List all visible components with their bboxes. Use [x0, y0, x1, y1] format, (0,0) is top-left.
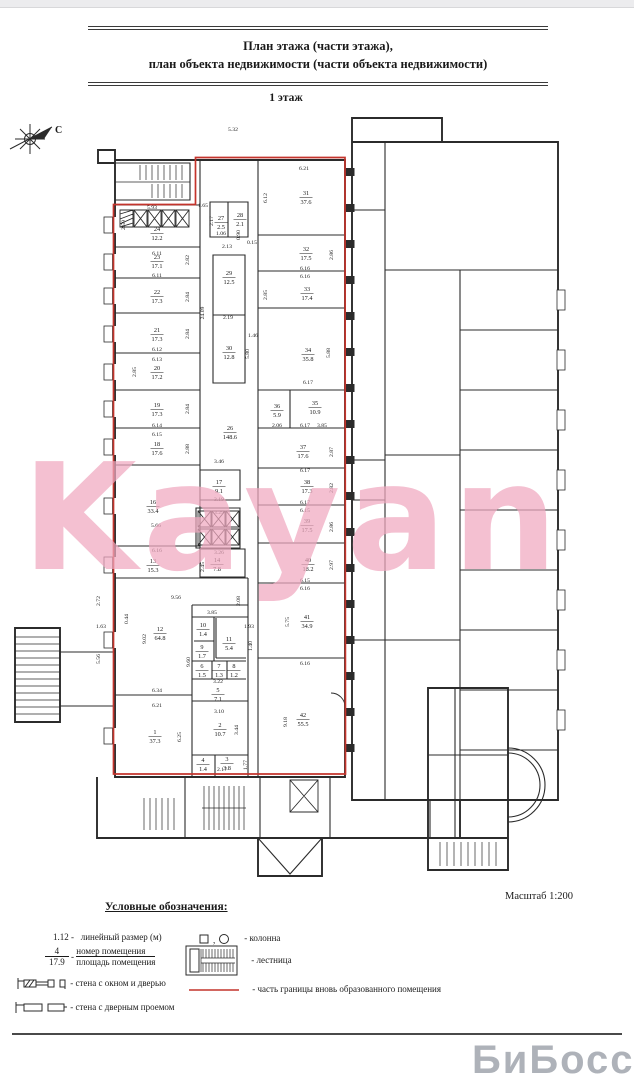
room-label: 282.1 [234, 212, 247, 228]
svg-text:17: 17 [216, 479, 222, 486]
svg-text:22: 22 [154, 289, 160, 296]
svg-text:28: 28 [237, 212, 243, 219]
room-label: 272.5 [215, 215, 228, 231]
svg-text:37.6: 37.6 [300, 199, 311, 206]
svg-text:9.1: 9.1 [215, 488, 223, 495]
svg-text:36: 36 [274, 403, 280, 410]
dimension-label: 9.56 [171, 595, 181, 601]
dimension-label: 5.66 [151, 523, 161, 529]
svg-text:39: 39 [304, 518, 310, 525]
room-label: 2217.3 [151, 289, 164, 305]
bottom-divider-line [12, 1033, 622, 1035]
svg-text:6: 6 [200, 663, 203, 670]
room-label: 3435.8 [302, 347, 315, 363]
dimension-label: 6.11 [152, 273, 162, 279]
svg-text:10.7: 10.7 [214, 731, 225, 738]
legend-dash: - [71, 952, 74, 962]
red-boundary-line-icon [188, 986, 240, 994]
legend-item-red-boundary: - часть границы вновь образованного поме… [188, 984, 441, 994]
svg-text:20: 20 [154, 365, 160, 372]
legend-room-fraction: 4 17.9 [45, 946, 69, 967]
dimension-label: 2.45 [200, 562, 206, 572]
dimension-label: 24.09 [200, 306, 206, 319]
svg-text:8: 8 [232, 663, 235, 670]
legend-room-area-label: площадь помещения [76, 957, 155, 967]
room-label: 91.7 [196, 644, 209, 660]
dimension-label: 1.65 [198, 203, 208, 209]
legend-room-area-example: 17.9 [45, 957, 69, 967]
legend-room-number-example: 4 [45, 946, 69, 957]
dimension-label: 2.19 [223, 315, 233, 321]
svg-text:14: 14 [214, 557, 221, 564]
dimension-label: 6.21 [299, 166, 309, 172]
svg-text:19: 19 [154, 402, 160, 409]
legend-red-boundary-label: - часть границы вновь образованного поме… [252, 984, 441, 994]
dimension-label: 1.77 [243, 760, 249, 770]
svg-text:12: 12 [157, 626, 163, 633]
room-label: 115.4 [223, 636, 236, 652]
svg-text:1.7: 1.7 [198, 653, 206, 660]
dimension-label: 6.25 [177, 732, 183, 742]
room-label: 4255.5 [297, 712, 310, 728]
dimension-label: 6.15 [300, 508, 310, 514]
svg-text:10.9: 10.9 [309, 409, 320, 416]
legend-title: Условные обозначения: [105, 901, 228, 913]
dimension-label: 2.88 [185, 444, 191, 454]
room-label: 3317.4 [301, 286, 314, 302]
legend-room-number-label: номер помещения [76, 946, 155, 957]
svg-text:1.4: 1.4 [199, 766, 208, 773]
dimension-label: 2.97 [329, 560, 335, 570]
svg-text:17.5: 17.5 [300, 255, 311, 262]
dimension-label: 2.87 [329, 447, 335, 457]
room-label: 2912.5 [223, 270, 236, 286]
room-label: 41.4 [197, 757, 210, 773]
svg-text:148.6: 148.6 [223, 434, 237, 441]
svg-text:35.8: 35.8 [302, 356, 313, 363]
legend-wall-window-label: - стена с окном и дверью [70, 978, 166, 988]
floor-plan-drawing: С 2412.22317.12217.32117.32017.21917.318… [0, 0, 634, 1080]
legend-item-stairs: - лестница [185, 945, 292, 977]
document-page: План этажа (части этажа), план объекта н… [0, 0, 634, 1080]
room-label: 179.1 [213, 479, 226, 495]
svg-text:5.9: 5.9 [273, 412, 281, 419]
svg-text:16: 16 [150, 499, 156, 506]
dimension-label: 9.18 [283, 717, 289, 727]
room-label: 26148.6 [223, 425, 237, 441]
legend-item-linear-dimension: 1.12 - линейный размер (м) [53, 932, 162, 942]
dimension-label: 2.84 [185, 292, 191, 302]
svg-text:17.6: 17.6 [297, 453, 308, 460]
svg-text:17.1: 17.1 [151, 263, 162, 270]
dimension-label: 1.06 [216, 231, 226, 237]
dimension-label: 2.72 [96, 596, 102, 606]
room-label: 1315.3 [147, 558, 160, 574]
legend-linear-dim-label: линейный размер (м) [81, 932, 162, 942]
dimension-label: 6.16 [300, 266, 310, 272]
dimension-label: 6.16 [300, 661, 310, 667]
svg-text:33.4: 33.4 [147, 508, 159, 515]
svg-text:2: 2 [218, 722, 221, 729]
svg-text:7.1: 7.1 [214, 696, 222, 703]
svg-text:12.5: 12.5 [223, 279, 234, 286]
dimension-label: 6.17 [300, 423, 310, 429]
svg-text:64.8: 64.8 [154, 635, 165, 642]
svg-text:17.6: 17.6 [151, 450, 162, 457]
dimension-label: 2.84 [185, 329, 191, 339]
svg-text:38: 38 [304, 479, 310, 486]
dimension-label: 2.86 [329, 250, 335, 260]
dimension-label: 9.02 [142, 634, 148, 644]
dimension-label: 6.34 [152, 688, 162, 694]
column-icon: , [198, 932, 234, 946]
legend-item-wall-door: - стена с дверным проемом [14, 1000, 174, 1016]
dimension-label: 6.12 [263, 193, 269, 203]
dimension-label: 1.63 [96, 624, 106, 630]
room-label: 3217.5 [300, 246, 313, 262]
dimension-label: 3.85 [317, 423, 327, 429]
stairs-icon [185, 945, 239, 977]
svg-text:33: 33 [304, 286, 310, 293]
legend-wall-door-label: - стена с дверным проемом [70, 1002, 174, 1012]
room-label: 210.7 [214, 722, 227, 738]
dimension-label: 3.44 [234, 725, 240, 735]
room-label: 1817.6 [151, 441, 164, 457]
svg-text:11: 11 [226, 636, 232, 643]
svg-text:26: 26 [227, 425, 233, 432]
room-label: 3137.6 [300, 190, 313, 206]
dimension-label: 3.85 [207, 610, 217, 616]
svg-text:17.2: 17.2 [151, 374, 162, 381]
svg-text:12.2: 12.2 [151, 235, 162, 242]
svg-text:17.5: 17.5 [301, 527, 312, 534]
svg-text:42: 42 [300, 712, 306, 719]
legend-linear-dim-symbol: 1.12 - [53, 932, 74, 942]
svg-text:7.8: 7.8 [213, 566, 221, 573]
room-label: 2117.3 [151, 327, 164, 343]
dimension-label: 1.46 [248, 333, 258, 339]
legend-column-label: - колонна [244, 933, 280, 943]
svg-text:55.5: 55.5 [297, 721, 308, 728]
dimension-label: 5.32 [228, 127, 238, 133]
room-label: 137.3 [149, 729, 162, 745]
dimension-label: 2.06 [272, 423, 282, 429]
dimension-label: 0.90 [236, 230, 242, 240]
room-label: 4134.9 [301, 614, 314, 630]
dimension-label: 3.26 [214, 550, 224, 556]
dimension-label: 5.56 [96, 654, 102, 664]
svg-text:34.9: 34.9 [301, 623, 312, 630]
svg-text:30: 30 [226, 345, 232, 352]
svg-text:37: 37 [300, 444, 306, 451]
dimension-label: 5.80 [245, 349, 251, 359]
room-label: 3510.9 [309, 400, 322, 416]
dimension-label: 6.15 [300, 578, 310, 584]
dimension-label: 6.11 [152, 251, 162, 257]
dimension-label: 2.13 [222, 244, 232, 250]
dimension-label: 3.19 [214, 497, 224, 503]
legend-item-column: , - колонна [198, 932, 280, 946]
dimension-label: 2.17 [217, 767, 227, 773]
room-label: 101.4 [197, 622, 210, 638]
svg-text:34: 34 [305, 347, 312, 354]
dimension-label: 0.44 [124, 614, 130, 624]
compass-icon: С [10, 124, 62, 154]
dimension-label: 2.85 [263, 290, 269, 300]
dimension-label: 6.17 [300, 468, 310, 474]
room-label: 3012.8 [223, 345, 236, 361]
compass-north-label: С [55, 125, 62, 136]
dimension-label: 5.93 [147, 205, 157, 211]
room-label: 2412.2 [151, 226, 164, 242]
room-label: 147.8 [211, 557, 224, 573]
dimension-label: 3.10 [214, 709, 224, 715]
dimension-label: 2.59 [121, 220, 127, 230]
dimension-label: 1.40 [248, 641, 254, 651]
svg-text:21: 21 [154, 327, 160, 334]
svg-text:10: 10 [200, 622, 206, 629]
svg-text:29: 29 [226, 270, 232, 277]
dimension-label: 3.46 [214, 459, 224, 465]
svg-text:27: 27 [218, 215, 224, 222]
wall-door-icon [14, 1000, 68, 1016]
svg-text:1.5: 1.5 [198, 672, 206, 679]
legend-item-wall-window: - стена с окном и дверью [16, 976, 166, 992]
svg-text:5: 5 [216, 687, 219, 694]
svg-text:1: 1 [153, 729, 156, 736]
room-label: 71.3 [213, 663, 226, 679]
dimension-label: 2.86 [329, 522, 335, 532]
dimension-label: 6.13 [152, 357, 162, 363]
svg-text:5.4: 5.4 [225, 645, 234, 652]
svg-text:17.3: 17.3 [301, 488, 312, 495]
dimension-label: 2.84 [185, 404, 191, 414]
dimension-label: 9.60 [186, 657, 192, 667]
room-label: 365.9 [271, 403, 284, 419]
svg-text:32: 32 [303, 246, 309, 253]
dimension-label: 0.15 [247, 240, 257, 246]
dimension-label: 1.93 [244, 624, 254, 630]
room-label: 3717.6 [297, 444, 310, 460]
dimension-label: 6.15 [152, 432, 162, 438]
wall-window-door-icon [16, 976, 68, 992]
svg-text:1.4: 1.4 [199, 631, 208, 638]
svg-text:2.1: 2.1 [236, 221, 244, 228]
dimension-label: 5.88 [326, 348, 332, 358]
room-label: 4018.2 [302, 557, 315, 573]
legend-item-room-number: 4 17.9 - номер помещения площадь помещен… [45, 946, 155, 967]
dimension-label: 6.16 [300, 586, 310, 592]
dimension-label: 2.08 [236, 596, 242, 606]
dimension-label: 2.85 [132, 367, 138, 377]
dimension-label: 2.17 [209, 216, 215, 226]
svg-text:4: 4 [201, 757, 205, 764]
dimension-label: 3.22 [213, 679, 223, 685]
svg-text:17.3: 17.3 [151, 411, 162, 418]
dimension-label: 2.82 [185, 255, 191, 265]
dimension-label: 6.21 [152, 703, 162, 709]
svg-text:13: 13 [150, 558, 156, 565]
room-label: 1264.8 [154, 626, 167, 642]
svg-text:17.3: 17.3 [151, 336, 162, 343]
svg-text:9: 9 [200, 644, 203, 651]
svg-text:1.2: 1.2 [230, 672, 238, 679]
dimension-label: 6.16 [152, 548, 162, 554]
svg-text:40: 40 [305, 557, 311, 564]
room-label: 1633.4 [147, 499, 160, 515]
svg-text:,: , [213, 935, 215, 945]
room-label: 1917.3 [151, 402, 164, 418]
room-label: 3917.5 [301, 518, 314, 534]
svg-text:7: 7 [217, 663, 220, 670]
svg-text:18.2: 18.2 [302, 566, 313, 573]
svg-text:41: 41 [304, 614, 310, 621]
dimension-label: 6.17 [300, 500, 310, 506]
svg-text:17.4: 17.4 [301, 295, 313, 302]
dimension-label: 6.12 [152, 347, 162, 353]
room-label: 3817.3 [301, 479, 314, 495]
dimension-label: 6.16 [300, 274, 310, 280]
svg-text:12.8: 12.8 [223, 354, 234, 361]
watermark-corner: БиБосс [472, 1038, 634, 1080]
legend-stairs-label: - лестница [251, 955, 291, 965]
legend-room-labels: номер помещения площадь помещения [76, 946, 155, 967]
svg-text:3: 3 [225, 756, 228, 763]
dimension-label: 3.29 [214, 510, 224, 516]
room-label: 61.5 [196, 663, 209, 679]
svg-text:31: 31 [303, 190, 309, 197]
room-label: 2017.2 [151, 365, 164, 381]
walls-layer [15, 118, 558, 876]
svg-text:24: 24 [154, 226, 161, 233]
dimension-label: 5.75 [285, 617, 291, 627]
svg-text:15.3: 15.3 [147, 567, 158, 574]
svg-text:18: 18 [154, 441, 160, 448]
room-label: 81.2 [228, 663, 241, 679]
dimension-label: 2.82 [329, 483, 335, 493]
svg-text:35: 35 [312, 400, 318, 407]
svg-text:37.3: 37.3 [149, 738, 160, 745]
svg-text:17.3: 17.3 [151, 298, 162, 305]
dimension-label: 6.14 [152, 423, 162, 429]
dimension-label: 6.17 [303, 380, 313, 386]
